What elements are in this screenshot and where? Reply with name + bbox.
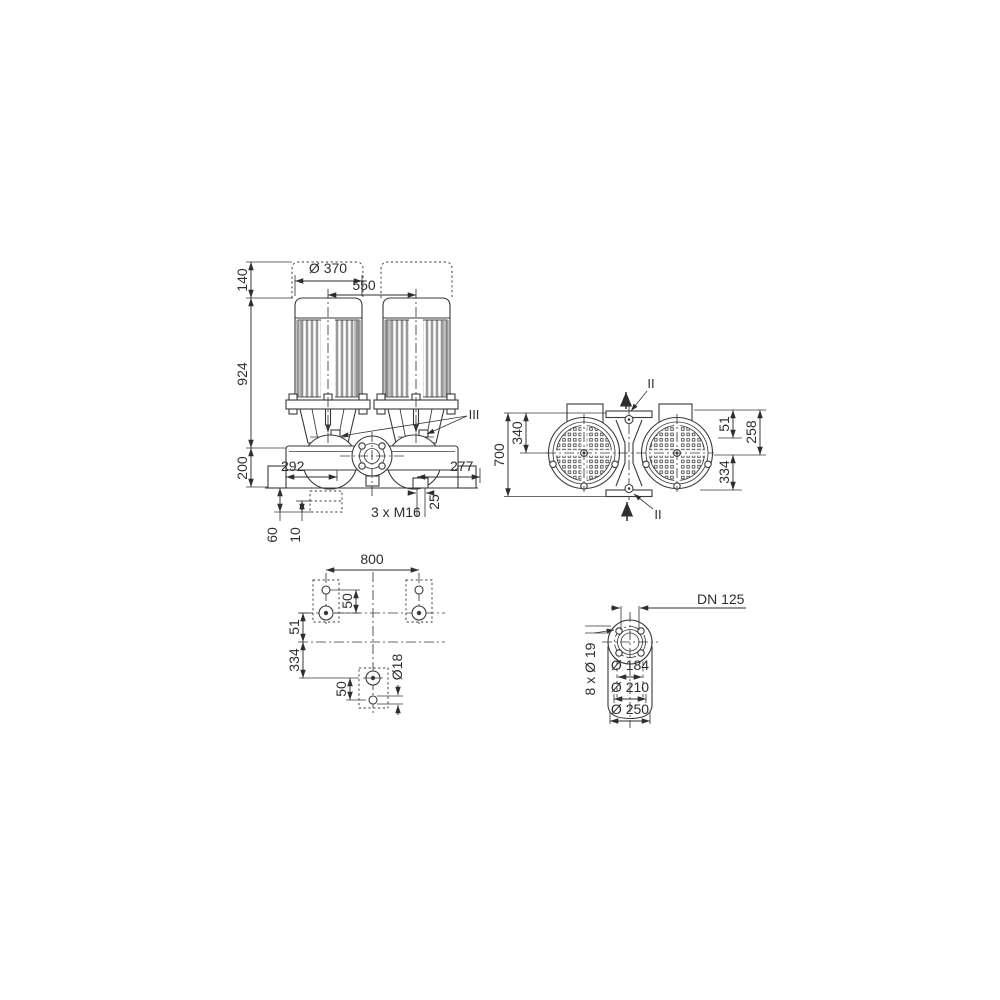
section-label-II-top: II [647, 376, 654, 391]
flange-detail-view: DN 125 8 x Ø 19 Ø 184 Ø 210 Ø 250 [582, 591, 746, 728]
motor-right-dashed-outline [381, 262, 452, 298]
dim-raised-face: Ø 184 [611, 657, 649, 673]
front-view: Ø 370 550 140 924 200 292 277 III 25 3 x… [234, 260, 480, 543]
dim-51-plan: 51 [286, 619, 302, 635]
anchor-bolt-bottom [363, 671, 383, 685]
dim-140: 140 [234, 268, 250, 292]
dim-800: 800 [360, 551, 384, 567]
dim-50-lower: 50 [333, 681, 349, 697]
dim-25: 25 [426, 494, 442, 510]
dim-258: 258 [743, 420, 759, 444]
dim-200: 200 [234, 456, 250, 480]
dim-50-upper: 50 [339, 593, 355, 609]
anchor-bolt-right [412, 606, 426, 620]
bolt-hole [638, 650, 644, 656]
anchor-bolt-left [319, 606, 333, 620]
top-view: II II 700 340 51 334 258 [491, 376, 766, 522]
drain-boss [366, 476, 379, 486]
bolt-holes-label: 8 x Ø 19 [582, 642, 598, 695]
dim-340: 340 [509, 421, 525, 445]
foundation-plan-view: 800 50 51 334 50 Ø18 [286, 551, 445, 715]
dim-51-top-view: 51 [716, 416, 732, 432]
foundation-pad-dashed [310, 491, 342, 512]
dim-277: 277 [450, 458, 474, 474]
section-label-III: III [469, 407, 480, 422]
dim-10: 10 [287, 527, 303, 543]
thread-label-m16: 3 x M16 [371, 504, 421, 520]
anchor-hole-diameter-label: Ø18 [389, 654, 405, 681]
support-foot [413, 478, 428, 488]
dim-924: 924 [234, 362, 250, 386]
anchor-hole [369, 696, 377, 704]
technical-drawing-page: Ø 370 550 140 924 200 292 277 III 25 3 x… [0, 0, 1000, 1000]
nominal-diameter-label: DN 125 [697, 591, 745, 607]
dim-334-top-view: 334 [716, 460, 732, 484]
pump-dimension-drawing: Ø 370 550 140 924 200 292 277 III 25 3 x… [0, 0, 1000, 1000]
dim-outer-diameter: Ø 250 [611, 701, 649, 717]
section-label-II-bottom: II [654, 507, 661, 522]
dim-700: 700 [491, 443, 507, 467]
dim-60: 60 [264, 527, 280, 543]
dim-motor-spacing: 550 [352, 277, 376, 293]
anchor-hole [322, 586, 330, 594]
dim-bolt-circle: Ø 210 [611, 679, 649, 695]
anchor-hole [415, 586, 423, 594]
dim-motor-diameter: Ø 370 [309, 260, 347, 276]
bolt-hole [616, 650, 622, 656]
dim-292: 292 [281, 458, 305, 474]
dim-334-plan: 334 [286, 648, 302, 672]
